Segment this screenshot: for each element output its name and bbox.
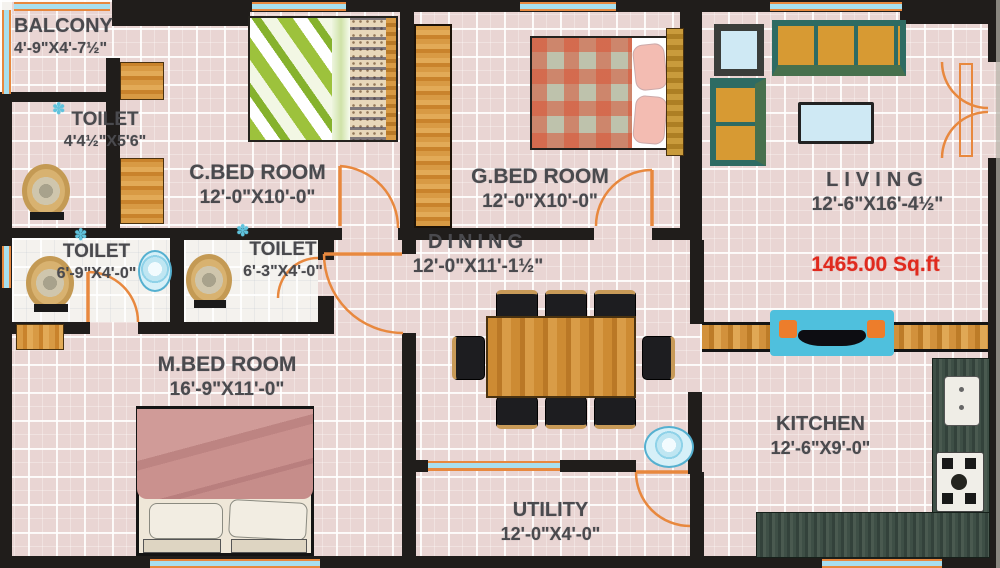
floor-plan: ✽ ✽ ✽ BALCONY 4'-9"X4'-7½" TOILET 4'4½"X… — [0, 0, 1000, 568]
dining-chair — [594, 396, 636, 429]
room-dims: 6'-9"X4'-0" — [34, 264, 159, 284]
room-name: C.BED ROOM — [165, 160, 350, 186]
gbed-headboard — [666, 28, 684, 156]
room-dims: 12'-0"X10'-0" — [450, 190, 630, 214]
toilet-top-basin — [22, 164, 70, 218]
entrance-door-arc — [942, 112, 988, 158]
dining-label: DINING 12'-0"X11'-1½" — [398, 230, 558, 279]
sink-tap — [959, 387, 964, 392]
mbed-bed — [136, 406, 314, 556]
entrance-door-arc — [942, 62, 988, 108]
kitchen-counter-bottom — [756, 512, 990, 558]
sink-tap — [959, 405, 964, 410]
toilet-top-label: TOILET 4'4½"X5'6" — [35, 108, 175, 152]
cbed-pillow-area — [350, 18, 386, 140]
room-dims: 12'-6"X16'-4½" — [800, 193, 955, 217]
balcony-door-leaf — [120, 62, 164, 100]
dining-chair — [545, 396, 587, 429]
kitchen-sink — [944, 376, 980, 426]
stove-burner — [942, 493, 953, 504]
cbed-label: C.BED ROOM 12'-0"X10'-0" — [165, 160, 350, 210]
toilet-top-door-leaf — [120, 158, 164, 224]
balcony-label: BALCONY 4'-9"X4'-7½" — [14, 14, 130, 59]
toilet-left-basin-base — [34, 304, 68, 312]
kitchen-label: KITCHEN 12'-6"X9'-0" — [758, 412, 883, 460]
utility-label: UTILITY 12'-0"X4'-0" — [488, 498, 613, 546]
room-dims: 12'-6"X9'-0" — [758, 437, 883, 460]
gbed-bed — [530, 36, 670, 150]
gbed-pillow — [632, 95, 668, 146]
mbed-pillow — [149, 503, 223, 539]
room-name: M.BED ROOM — [142, 352, 312, 378]
dining-table — [486, 316, 636, 398]
room-name: G.BED ROOM — [450, 164, 630, 190]
room-name: UTILITY — [488, 498, 613, 523]
room-name: BALCONY — [14, 14, 130, 39]
utility-wash-basin — [644, 426, 694, 468]
mbed-footboard — [143, 539, 221, 553]
dining-chair — [642, 336, 675, 380]
room-name: TOILET — [34, 240, 159, 264]
gbed-wardrobe — [414, 24, 452, 228]
entrance-door-frame — [960, 64, 972, 156]
sofa-three-seat — [772, 20, 906, 76]
kitchen-stove — [936, 452, 984, 512]
toilet-left-label: TOILET 6'-9"X4'-0" — [34, 240, 159, 284]
cbed-blanket — [250, 18, 332, 140]
stove-burner — [942, 458, 953, 469]
room-dims: 16'-9"X11'-0" — [142, 378, 312, 402]
mbed-footboard — [231, 539, 307, 553]
mbed-shaft-box — [16, 324, 64, 350]
gbed-pillow — [632, 42, 669, 91]
tv-stand-knob — [867, 320, 885, 338]
room-name: KITCHEN — [758, 412, 883, 437]
tv-stand-knob — [779, 320, 797, 338]
stove-burner — [965, 493, 976, 504]
toilet-mid-basin — [186, 254, 232, 306]
coffee-table — [798, 102, 874, 144]
corner-side-table — [714, 24, 764, 76]
mbed-blanket — [137, 409, 313, 499]
stove-center — [951, 474, 967, 490]
mbed-pillow — [228, 499, 308, 541]
area-label: 1465.00 Sq.ft — [788, 252, 963, 278]
mbed-label: M.BED ROOM 16'-9"X11'-0" — [142, 352, 312, 402]
living-label: LIVING 12'-6"X16'-4½" — [800, 168, 955, 217]
room-dims: 4'-9"X4'-7½" — [14, 39, 130, 59]
room-name: TOILET — [228, 238, 338, 262]
room-name: TOILET — [35, 108, 175, 132]
toilet-mid-label: TOILET 6'-3"X4'-0" — [228, 238, 338, 282]
cbed-headboard — [386, 18, 396, 140]
tv — [798, 330, 866, 346]
room-dims: 4'4½"X5'6" — [35, 132, 175, 152]
stove-burner — [965, 458, 976, 469]
cbed-bed — [248, 16, 398, 142]
utility-door-arc — [636, 472, 690, 526]
toilet-top-basin-base — [30, 212, 64, 220]
toilet-mid-basin-base — [194, 300, 226, 308]
gbed-blanket — [532, 38, 632, 148]
scan-edge — [996, 0, 1000, 568]
room-dims: 12'-0"X10'-0" — [165, 186, 350, 210]
gbed-label: G.BED ROOM 12'-0"X10'-0" — [450, 164, 630, 214]
room-dims: 6'-3"X4'-0" — [228, 262, 338, 282]
room-name: DINING — [398, 230, 558, 255]
dining-chair — [496, 396, 538, 429]
sofa-two-seat — [710, 78, 766, 166]
cbed-sheet-fold — [332, 18, 350, 140]
dining-chair — [452, 336, 485, 380]
room-dims: 12'-0"X4'-0" — [488, 523, 613, 546]
room-dims: 12'-0"X11'-1½" — [398, 255, 558, 279]
room-name: LIVING — [800, 168, 955, 193]
